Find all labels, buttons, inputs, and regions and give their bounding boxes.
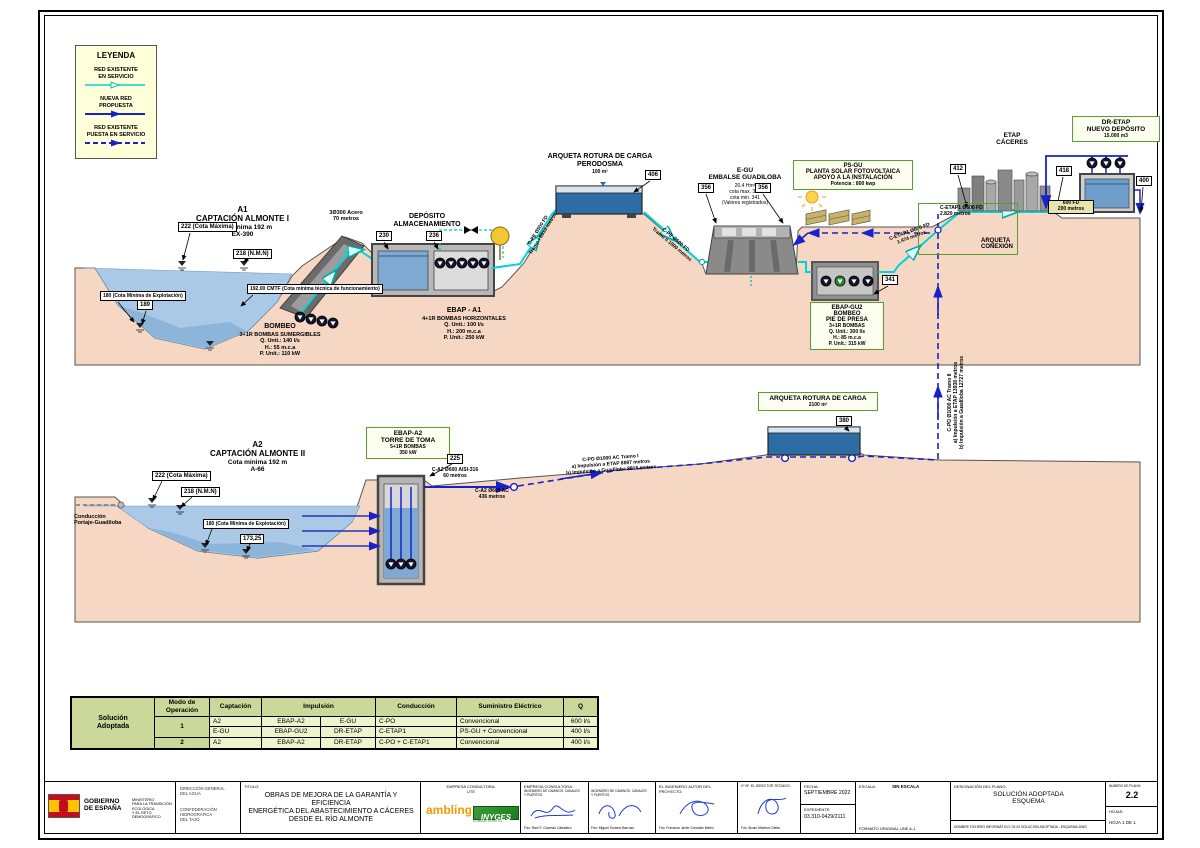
firma3-label: Fdo: Francisco Javier González Martín bbox=[659, 826, 714, 830]
ebap-gu2-label-box: EBAP-GU2 BOMBEO PIE DE PRESA 3+1R BOMBAS… bbox=[810, 302, 884, 350]
tb-designacion: DESIGNACIÓN DEL PLANO: SOLUCIÓN ADOPTADA… bbox=[950, 782, 1106, 834]
firma1-label: Fdo: Raúl F. Guzmán Caballero bbox=[524, 826, 572, 830]
col-conduccion: Conducción bbox=[376, 697, 457, 716]
tb-gobierno: GOBIERNO DE ESPAÑA MINISTERIO PARA LA TR… bbox=[44, 782, 175, 834]
numero-label: NÚMERO DE PLANO: bbox=[1109, 784, 1141, 788]
tag-400: 400 bbox=[1136, 176, 1152, 186]
tag-218-upper: 218 (N.M.N) bbox=[233, 249, 272, 259]
divider bbox=[588, 782, 589, 834]
confederacion-label: CONFEDERACIÓN HIDROGRÁFICA DEL TAJO bbox=[180, 808, 217, 822]
legend-title: LEYENDA bbox=[76, 51, 156, 60]
cell: DR-ETAP bbox=[321, 727, 376, 738]
ministerio-label: MINISTERIO PARA LA TRANSICIÓN ECOLÓGICA … bbox=[132, 798, 176, 820]
tb-numero: NÚMERO DE PLANO: 2.2 HOJAS: HOJA 1 DE 1 bbox=[1105, 782, 1158, 834]
ebap-gu2-specs: 3+1R BOMBAS Q. Unit.: 300 l/s H.: 85 m.c… bbox=[814, 323, 880, 347]
cell: EBAP-A2 bbox=[262, 738, 321, 749]
pipe-ca2-ac-label: C-A2 Ø600 AC 436 metros bbox=[464, 489, 520, 501]
legend-proposed-line bbox=[85, 110, 147, 118]
dretap-volume: 15.000 m3 bbox=[1076, 133, 1156, 139]
ingeniero2-title: INGENIERO DE CAMINOS, CANALES Y PUERTOS bbox=[591, 790, 653, 797]
escala-value: SIN ESCALA bbox=[892, 784, 919, 789]
hoja-value: HOJA 1 DE 1 bbox=[1109, 820, 1136, 825]
tag-cmtf: 192.00 CMTF (Cota mínima técnica de func… bbox=[247, 284, 383, 294]
cell: E-GU bbox=[210, 727, 262, 738]
gobierno-label: GOBIERNO DE ESPAÑA bbox=[84, 798, 121, 813]
legend-existing-service-line bbox=[85, 139, 147, 147]
cell: EBAP-GU2 bbox=[262, 727, 321, 738]
cell: A2 bbox=[210, 716, 262, 727]
arqueta-rotura-label: ARQUETA ROTURA DE CARGA bbox=[762, 395, 874, 402]
a1-title: A1 CAPTACIÓN ALMONTE I bbox=[170, 205, 315, 223]
empresa-ute-label: EMPRESA CONSULTORA: UTE bbox=[421, 784, 521, 794]
tb-titulo: TITULO: OBRAS DE MEJORA DE LA GARANTÍA Y… bbox=[240, 782, 421, 834]
designacion-value: SOLUCIÓN ADOPTADA ESQUEMA bbox=[961, 791, 1096, 806]
legend-existing-service-label: RED EXISTENTE PUESTA EN SERVICIO bbox=[76, 125, 156, 138]
cell: DR-ETAP bbox=[321, 738, 376, 749]
arqueta-conexion-box: ARQUETA CONEXIÓN bbox=[918, 203, 1018, 255]
firma2-label: Fdo: Miguel Soriano Barroso bbox=[591, 826, 634, 830]
ebap-gu2-box bbox=[812, 262, 878, 300]
signature-4 bbox=[750, 794, 790, 820]
firma4-label: Fdo: Álvaro Martínez Dietta bbox=[741, 826, 780, 830]
ebap-a2-box: EBAP-A2 TORRE DE TOMA 5+1R BOMBAS 350 kW bbox=[366, 427, 450, 459]
col-impulsion: Impulsión bbox=[262, 697, 376, 716]
col-suministro: Suministro Eléctrico bbox=[457, 697, 564, 716]
director-label: Vº Bº. EL DIRECTOR TÉCNICO: bbox=[741, 784, 791, 788]
etap-caceres-label: ETAP CÁCERES bbox=[986, 132, 1038, 147]
dretap-box: DR-ETAP NUEVO DEPÓSITO 15.000 m3 bbox=[1072, 116, 1160, 142]
tag-418: 418 bbox=[1056, 166, 1072, 176]
plan-sheet: { "legend": { "title": "LEYENDA", "exist… bbox=[0, 0, 1200, 848]
cell: A2 bbox=[210, 738, 262, 749]
divider bbox=[951, 820, 1106, 821]
formato-label: FORMATO ORIGINAL UNE A-1 bbox=[859, 826, 915, 831]
fecha-value: SEPTIEMBRE 2022 bbox=[804, 791, 850, 797]
ebap-gu2-title: EBAP-GU2 BOMBEO PIE DE PRESA bbox=[814, 305, 880, 323]
deposito-almacenamiento bbox=[372, 244, 494, 296]
project-title: OBRAS DE MEJORA DE LA GARANTÍA Y EFICIEN… bbox=[245, 792, 417, 824]
arqueta-perodosma-label: ARQUETA ROTURA DE CARGA PERODOSMA bbox=[533, 153, 667, 169]
ebap-a2-specs: 5+1R BOMBAS 350 kW bbox=[370, 444, 446, 456]
psgu-power: Potencia : 800 kwp bbox=[797, 181, 909, 187]
cell-modo-1: 1 bbox=[155, 716, 210, 738]
divider bbox=[1106, 806, 1158, 807]
cell-modo-2: 2 bbox=[155, 738, 210, 749]
legend-existing-label: RED EXISTENTE EN SERVICIO bbox=[76, 67, 156, 80]
signature-1 bbox=[529, 800, 579, 822]
signature-2 bbox=[595, 800, 645, 822]
psgu-title: PS-GU PLANTA SOLAR FOTOVOLTAICA APOYO A … bbox=[797, 163, 909, 181]
a2-title: A2 CAPTACIÓN ALMONTE II bbox=[180, 440, 335, 458]
tb-fecha: FECHA: SEPTIEMBRE 2022 EXPEDIENTE: 03.31… bbox=[800, 782, 856, 834]
cell: Convencional bbox=[457, 738, 564, 749]
table-corner: Solución Adoptada bbox=[71, 697, 155, 749]
col-captacion: Captación bbox=[210, 697, 262, 716]
ambling-logo: ambling bbox=[426, 804, 472, 818]
expediente-label: EXPEDIENTE: bbox=[804, 807, 830, 812]
tag-173: 173,25 bbox=[240, 534, 264, 544]
arqueta-conexion-label: ARQUETA CONEXIÓN bbox=[981, 238, 1013, 250]
spain-crest-icon bbox=[59, 800, 68, 812]
tag-222-upper: 222 (Cota Máxima) bbox=[178, 222, 237, 232]
tag-356-right: 356 bbox=[755, 183, 771, 193]
tag-236: 236 bbox=[426, 231, 442, 241]
tag-406: 406 bbox=[645, 170, 661, 180]
ebap-a2-title: EBAP-A2 TORRE DE TOMA bbox=[370, 430, 446, 444]
spain-flag-icon bbox=[48, 794, 80, 818]
tag-218-lower: 218 (N.M.N) bbox=[181, 487, 220, 497]
autor-label: EL INGENIERO AUTOR DEL PROYECTO: bbox=[659, 784, 711, 794]
cell: Convencional bbox=[457, 716, 564, 727]
tb-consultora-firmas: EMPRESA CONSULTORA: INGENIERO DE CAMINOS… bbox=[520, 782, 656, 834]
deposito-label: DEPÓSITO ALMACENAMIENTO bbox=[368, 213, 486, 229]
divider bbox=[801, 804, 856, 805]
psgu-box: PS-GU PLANTA SOLAR FOTOVOLTAICA APOYO A … bbox=[793, 160, 913, 190]
col-modo: Modo de Operación bbox=[155, 697, 210, 716]
tag-356-left: 356 bbox=[698, 183, 714, 193]
legend: LEYENDA RED EXISTENTE EN SERVICIO NUEVA … bbox=[75, 45, 157, 159]
bombeo-a1-title: BOMBEO bbox=[230, 323, 330, 331]
legend-proposed-label: NUEVA RED PROPUESTA bbox=[76, 96, 156, 109]
cell: 600 l/s bbox=[564, 716, 599, 727]
escala-label: ESCALA: bbox=[859, 784, 876, 789]
designacion-label: DESIGNACIÓN DEL PLANO: bbox=[954, 784, 1007, 789]
pipe-600fd-label: 600 FD 200 metros bbox=[1048, 200, 1094, 214]
cell: C-PO bbox=[376, 716, 457, 727]
pipe-cpo-tramo2-label: C-PO Ø1000 AC Tramo II a) Impulsión a ET… bbox=[948, 340, 965, 465]
fichero-label: NOMBRE FICHERO INFORMÁTICO: 02.02 SOLUCI… bbox=[954, 825, 1087, 829]
titulo-label: TITULO: bbox=[244, 784, 259, 789]
arqueta-rotura-tank bbox=[768, 427, 860, 455]
tb-consultora-logos: EMPRESA CONSULTORA: UTE ambling INYGES C… bbox=[420, 782, 521, 834]
solution-table: Solución Adoptada Modo de Operación Capt… bbox=[70, 696, 599, 750]
pipe-ca2-aisi-label: C-A2 Ø600 AISI-316 60 metros bbox=[418, 468, 492, 480]
tag-189: 189 bbox=[137, 300, 153, 310]
conduccion-portaje-label: Conducción Portaje-Guadiloba bbox=[74, 514, 138, 527]
tag-341: 341 bbox=[882, 275, 898, 285]
tag-412: 412 bbox=[950, 164, 966, 174]
signature-3 bbox=[674, 796, 718, 820]
legend-existing-line bbox=[85, 81, 147, 89]
egu-title: E-GU EMBALSE GUADILOBA bbox=[693, 167, 797, 182]
cell: E-GU bbox=[321, 716, 376, 727]
arqueta-perodosma-tank bbox=[556, 182, 642, 218]
dretap-title: DR-ETAP NUEVO DEPÓSITO bbox=[1076, 119, 1156, 133]
cell: PS-GU + Convencional bbox=[457, 727, 564, 738]
numero-value: 2.2 bbox=[1106, 790, 1158, 800]
col-q: Q bbox=[564, 697, 599, 716]
tb-autor: EL INGENIERO AUTOR DEL PROYECTO: Fdo: Fr… bbox=[655, 782, 738, 834]
cell: C-PO + C-ETAP1 bbox=[376, 738, 457, 749]
tag-380: 380 bbox=[836, 416, 852, 426]
cell: 400 l/s bbox=[564, 738, 599, 749]
expediente-value: 03.310-0429/2111 bbox=[804, 815, 845, 821]
ebap-a1-title: EBAP - A1 bbox=[405, 307, 523, 315]
arqueta-rotura-volume: 2100 m³ bbox=[762, 402, 874, 408]
inyges-sub-label: CONSULTORES S.L. bbox=[473, 820, 504, 824]
tag-222-lower: 222 (Cota Máxima) bbox=[152, 471, 211, 481]
tag-230: 230 bbox=[376, 231, 392, 241]
bombeo-a1-specs: 3+1R BOMBAS SUMERGIBLES Q. Unit.: 140 l/… bbox=[215, 332, 345, 357]
cell: C-ETAP1 bbox=[376, 727, 457, 738]
tb-escala: ESCALA: SIN ESCALA FORMATO ORIGINAL UNE … bbox=[855, 782, 951, 834]
ingeniero1-title: INGENIERO DE CAMINOS, CANALES Y PUERTOS bbox=[524, 790, 586, 797]
cell: EBAP-A2 bbox=[262, 716, 321, 727]
fecha-label: FECHA: bbox=[804, 784, 819, 789]
tag-180-lower: 180 (Cota Mínima de Explotación) bbox=[203, 519, 289, 529]
tag-225: 225 bbox=[447, 454, 463, 464]
arqueta-rotura-box: ARQUETA ROTURA DE CARGA 2100 m³ bbox=[758, 392, 878, 411]
cell: 400 l/s bbox=[564, 727, 599, 738]
tb-organismo: DIRECCIÓN GENERAL DEL AGUA CONFEDERACIÓN… bbox=[175, 782, 241, 834]
tb-director: Vº Bº. EL DIRECTOR TÉCNICO: Fdo: Álvaro … bbox=[737, 782, 801, 834]
hojas-label: HOJAS: bbox=[1109, 809, 1123, 814]
ebap-a1-specs: 4+1R BOMBAS HORIZONTALES Q. Unit.: 100 l… bbox=[400, 316, 528, 341]
direccion-general-label: DIRECCIÓN GENERAL DEL AGUA bbox=[180, 787, 225, 797]
inyges-logo: INYGES bbox=[473, 806, 519, 820]
